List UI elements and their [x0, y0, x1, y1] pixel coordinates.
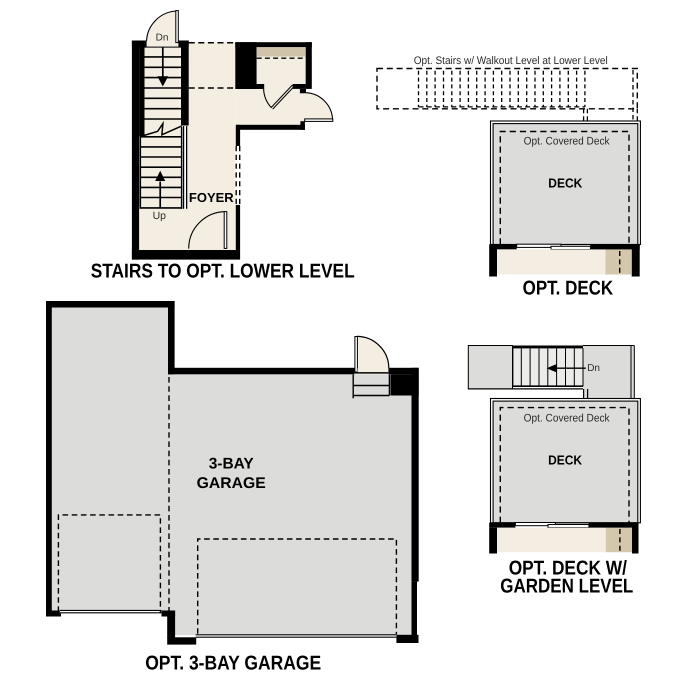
svg-text:Opt. Covered Deck: Opt. Covered Deck: [524, 412, 610, 424]
svg-text:FOYER: FOYER: [189, 190, 234, 205]
svg-text:3-BAY: 3-BAY: [209, 455, 255, 472]
svg-text:Up: Up: [153, 210, 167, 222]
svg-text:OPT. DECK: OPT. DECK: [523, 278, 614, 300]
svg-text:Dn: Dn: [587, 363, 600, 374]
svg-text:Dn: Dn: [156, 32, 169, 43]
svg-text:DECK: DECK: [548, 452, 583, 467]
svg-text:GARDEN LEVEL: GARDEN LEVEL: [500, 575, 633, 597]
svg-text:Opt. Stairs w/ Walkout Level a: Opt. Stairs w/ Walkout Level at Lower Le…: [414, 55, 608, 67]
svg-text:OPT. 3-BAY GARAGE: OPT. 3-BAY GARAGE: [145, 653, 321, 675]
svg-text:STAIRS TO OPT. LOWER LEVEL: STAIRS TO OPT. LOWER LEVEL: [91, 260, 355, 282]
svg-text:Opt. Covered Deck: Opt. Covered Deck: [524, 135, 610, 147]
svg-text:DECK: DECK: [548, 176, 583, 191]
svg-text:GARAGE: GARAGE: [197, 475, 266, 492]
